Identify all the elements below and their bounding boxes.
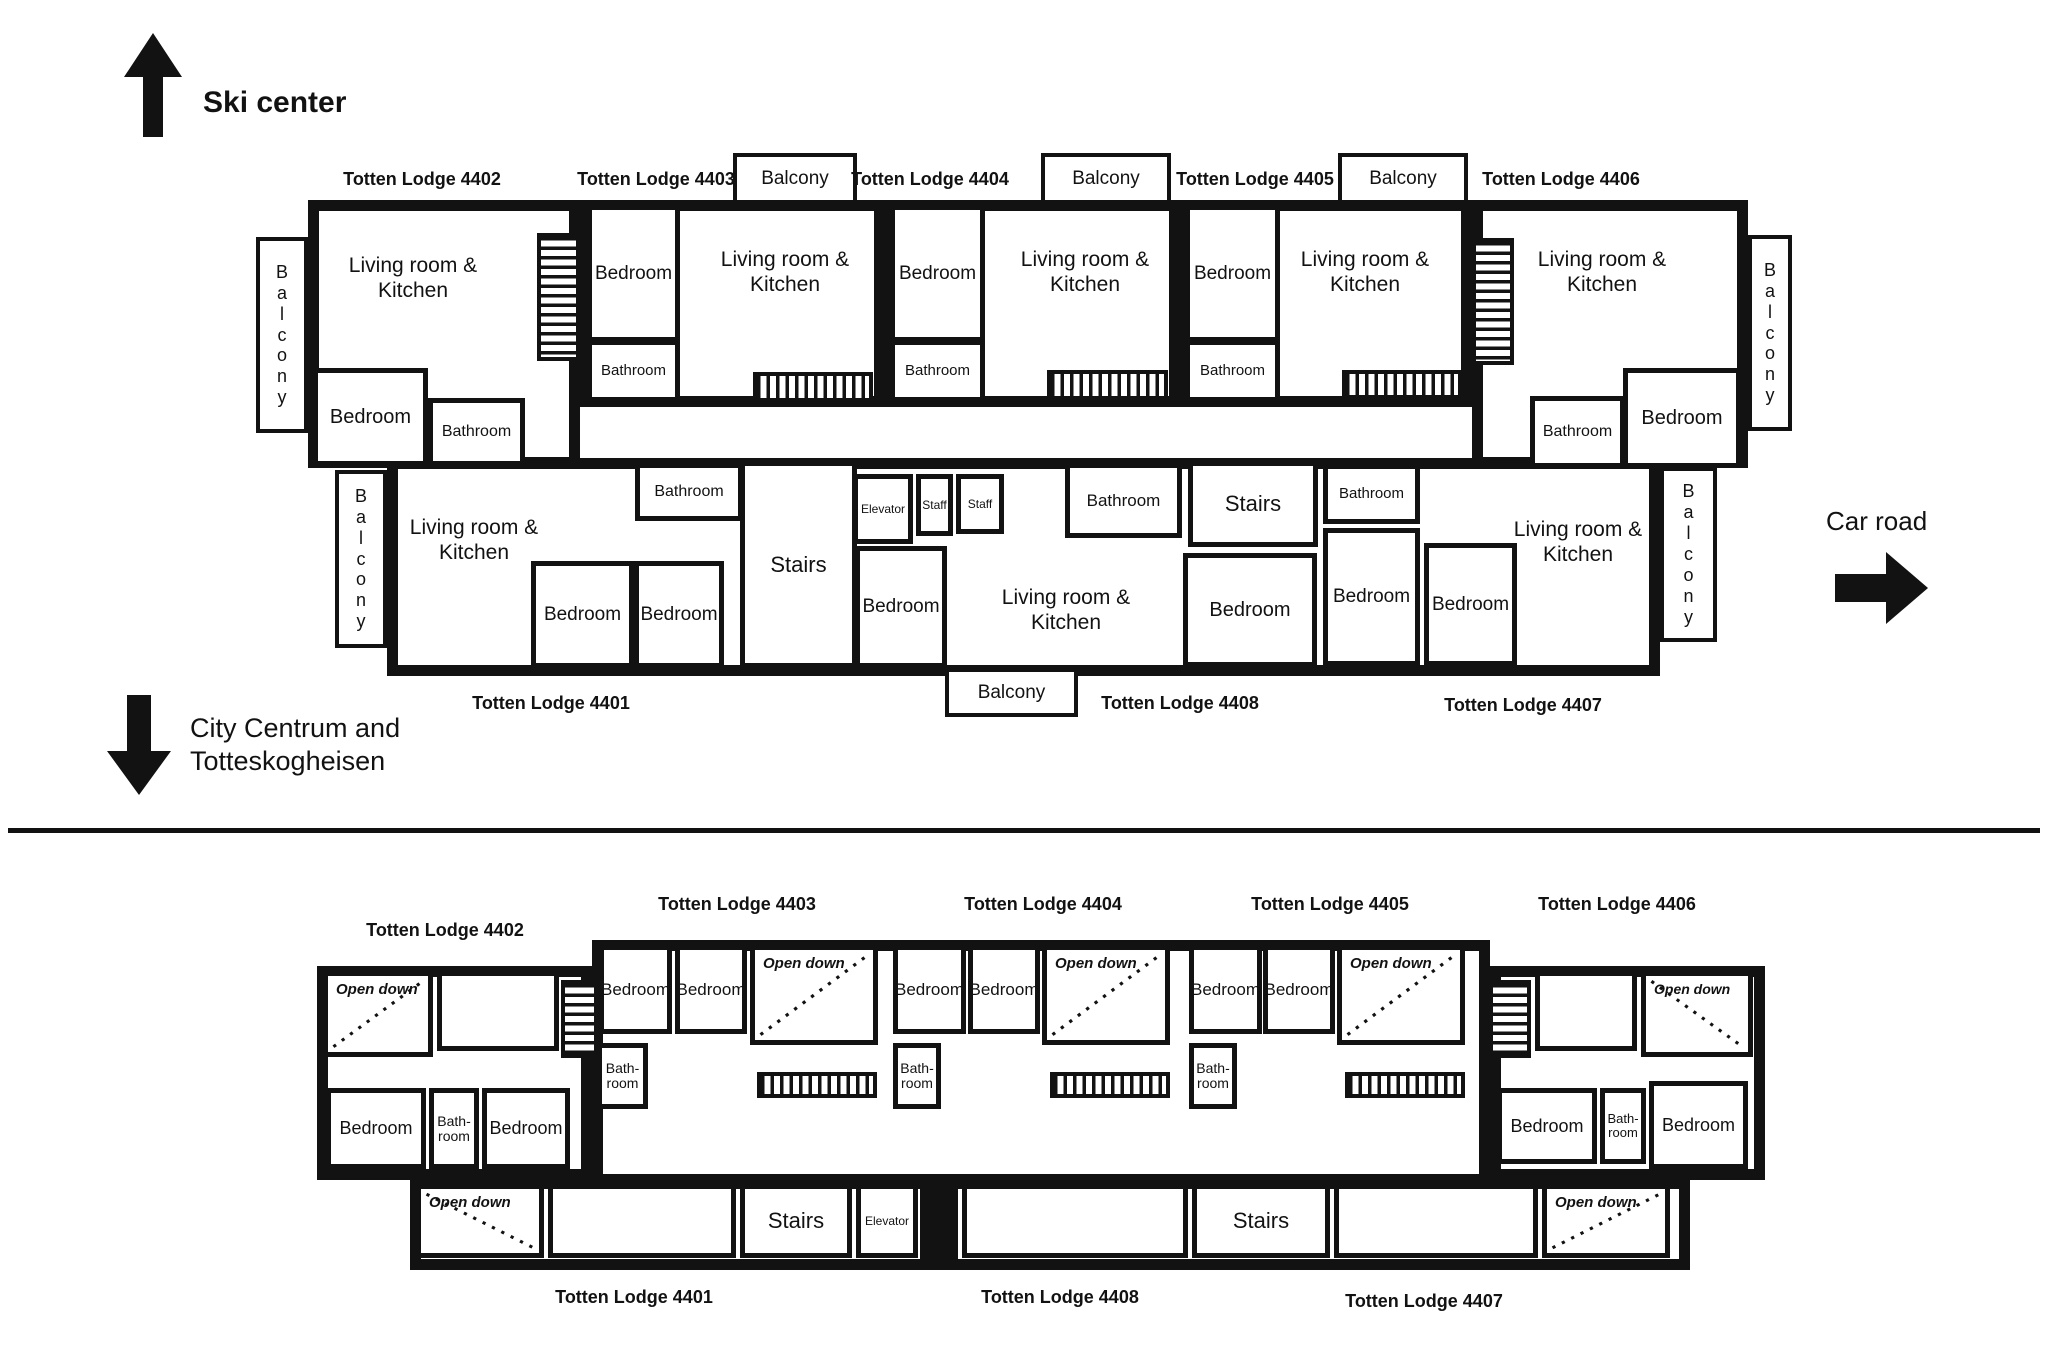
- opendown-4403: Open down: [750, 945, 878, 1045]
- room-south-a: [548, 1184, 736, 1258]
- opendown-west-top-label: Open down: [336, 981, 418, 998]
- bedroom-4405-upper-b: Bedroom: [1263, 945, 1335, 1034]
- upper-stairs-hatch-west: [561, 980, 598, 1058]
- upper-stairs-hatch-4404: [1050, 1072, 1170, 1098]
- floor-plan-canvas: Ski center City Centrum and Totteskoghei…: [0, 0, 2048, 1365]
- upper-stairs-hatch-east: [1489, 980, 1531, 1058]
- lodge-4402-upper-label: Totten Lodge 4402: [366, 920, 524, 942]
- lodge-4403-upper-label: Totten Lodge 4403: [658, 894, 816, 916]
- room-west-top: [437, 971, 559, 1051]
- room-south-b: [962, 1184, 1188, 1258]
- elevator-upper: Elevator: [856, 1184, 918, 1258]
- bathroom-4404-upper: Bath- room: [893, 1043, 941, 1109]
- opendown-4404: Open down: [1042, 945, 1170, 1045]
- lodge-4404-upper-label: Totten Lodge 4404: [964, 894, 1122, 916]
- bedroom-4404-upper-a: Bedroom: [893, 945, 966, 1034]
- core-block: [920, 1178, 958, 1270]
- opendown-south-east-label: Open down: [1555, 1194, 1637, 1211]
- upper-stairs-hatch-4405: [1345, 1072, 1465, 1098]
- opendown-south-west: Open down: [416, 1184, 544, 1258]
- opendown-south-west-label: Open down: [429, 1194, 511, 1211]
- bedroom-upper-a: Bedroom: [326, 1088, 426, 1169]
- stairs-upper-west: Stairs: [740, 1184, 852, 1258]
- opendown-4405-label: Open down: [1350, 955, 1432, 972]
- bedroom-upper-b: Bedroom: [482, 1088, 570, 1169]
- bedroom-4403-upper-b: Bedroom: [675, 945, 747, 1034]
- opendown-east-top-label: Open down: [1654, 981, 1730, 997]
- opendown-4405: Open down: [1337, 945, 1465, 1045]
- lodge-4405-upper-label: Totten Lodge 4405: [1251, 894, 1409, 916]
- bathroom-4405-upper: Bath- room: [1189, 1043, 1237, 1109]
- bathroom-4403-upper: Bath- room: [597, 1043, 648, 1109]
- bathroom-upper-a: Bath- room: [429, 1088, 479, 1169]
- opendown-south-east: Open down: [1542, 1184, 1670, 1258]
- room-south-c: [1334, 1184, 1538, 1258]
- bedroom-4405-upper-a: Bedroom: [1189, 945, 1262, 1034]
- upper-stairs-hatch-4403: [757, 1072, 877, 1098]
- upper-floor-plan: Open downBedroomBath- roomBedroomBedroom…: [0, 0, 2048, 1365]
- stairs-upper-east: Stairs: [1192, 1184, 1330, 1258]
- bedroom-4404-upper-b: Bedroom: [968, 945, 1040, 1034]
- bedroom-upper-c: Bedroom: [1497, 1088, 1597, 1164]
- room-east-top: [1535, 971, 1637, 1051]
- opendown-west-top: Open down: [323, 971, 433, 1057]
- bathroom-upper-b: Bath- room: [1600, 1088, 1646, 1164]
- opendown-4403-label: Open down: [763, 955, 845, 972]
- opendown-east-top: Open down: [1641, 971, 1753, 1057]
- lodge-4408-upper-label: Totten Lodge 4408: [981, 1287, 1139, 1309]
- bedroom-upper-d: Bedroom: [1649, 1081, 1748, 1169]
- lodge-4406-upper-label: Totten Lodge 4406: [1538, 894, 1696, 916]
- lodge-4401-upper-label: Totten Lodge 4401: [555, 1287, 713, 1309]
- bedroom-4403-upper-a: Bedroom: [599, 945, 672, 1034]
- opendown-4404-label: Open down: [1055, 955, 1137, 972]
- lodge-4407-upper-label: Totten Lodge 4407: [1345, 1291, 1503, 1313]
